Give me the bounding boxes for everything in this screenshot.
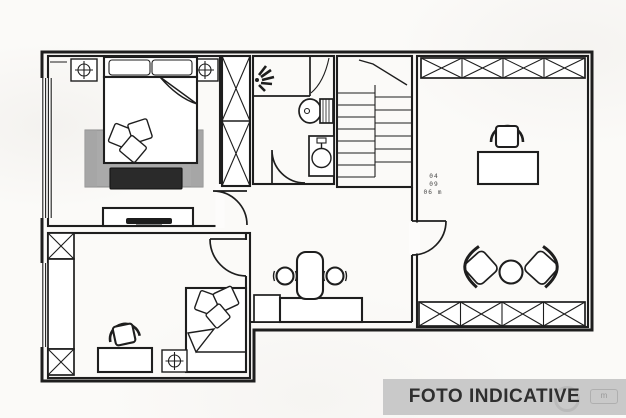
office-chair-icon	[491, 126, 523, 147]
bed-bench	[110, 168, 182, 189]
tv-stand	[103, 208, 193, 226]
dimension-line: 04	[429, 173, 438, 180]
wardrobe-icon	[48, 349, 74, 375]
dimension-line: 09	[429, 181, 438, 188]
doorway-gap	[409, 223, 420, 254]
lounge-chair-icon	[523, 246, 565, 288]
right-room-outline	[417, 56, 588, 327]
door-arc-icon	[210, 239, 246, 276]
study-chair	[297, 252, 323, 299]
study-counter	[280, 298, 362, 322]
watermark-logo-icon: m	[590, 389, 618, 404]
sink-icon	[309, 136, 334, 176]
foto-indicative-banner: FOTO INDICATIVE m	[383, 379, 626, 415]
stool-icon	[274, 268, 297, 285]
shower-spray-icon	[255, 66, 274, 91]
window-icon	[41, 78, 53, 218]
toilet-icon	[299, 99, 333, 123]
listing-photo-floor-plan: 04 09 06 m FOTO INDICATIVE m	[0, 0, 626, 418]
desk	[478, 152, 538, 184]
watermark-ring-icon	[554, 386, 580, 412]
wardrobe-icon	[48, 233, 74, 259]
single-bed	[186, 286, 246, 372]
stairs-icon	[337, 60, 412, 177]
ceiling-light-icon	[162, 350, 187, 372]
ceiling-light-icon	[71, 59, 97, 81]
dimension-note: 04 09 06 m	[424, 173, 443, 196]
desk	[98, 348, 152, 372]
study-area	[254, 252, 362, 322]
step-box	[254, 295, 280, 322]
office-chair-icon	[107, 321, 141, 347]
stool-icon	[324, 268, 347, 285]
bathroom-fixtures	[253, 56, 334, 176]
lounge-chair-icon	[457, 246, 499, 288]
wardrobe-icon	[222, 56, 250, 186]
wardrobe-icon	[419, 302, 585, 326]
coffee-table-icon	[500, 261, 523, 284]
wardrobe-icon	[421, 58, 585, 78]
double-bed	[104, 57, 197, 163]
door-arc-icon	[272, 150, 305, 183]
floor-plan-svg: 04 09 06 m	[0, 0, 626, 418]
tall-cabinet	[48, 259, 74, 349]
dimension-line: 06 m	[424, 189, 443, 196]
